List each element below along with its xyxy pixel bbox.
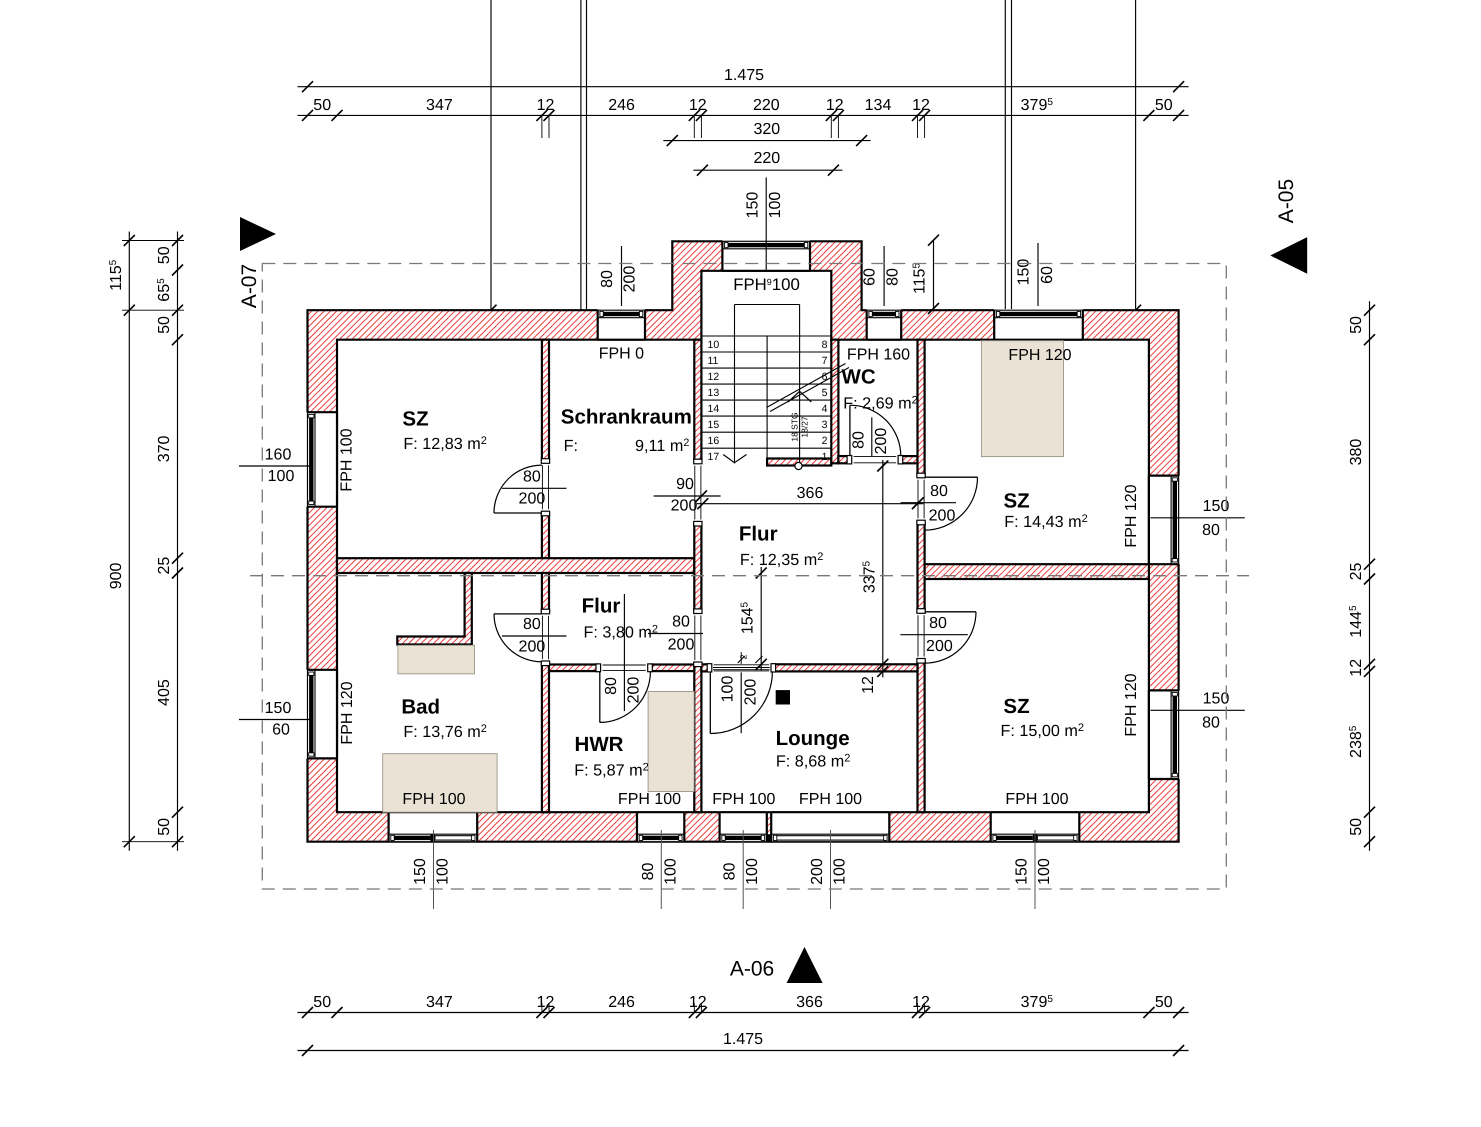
svg-text:200: 200 xyxy=(622,266,639,293)
svg-text:220: 220 xyxy=(753,97,780,114)
svg-text:FPH 100: FPH 100 xyxy=(339,428,356,491)
svg-text:2: 2 xyxy=(739,654,749,659)
svg-text:FPH 120: FPH 120 xyxy=(1123,484,1140,547)
svg-text:FPH 100: FPH 100 xyxy=(799,791,862,808)
svg-text:50: 50 xyxy=(1348,316,1365,334)
svg-text:150: 150 xyxy=(1203,691,1230,708)
svg-text:9,11 m2: 9,11 m2 xyxy=(635,437,689,455)
svg-text:347: 347 xyxy=(426,97,453,114)
svg-text:60: 60 xyxy=(862,268,879,286)
svg-text:50: 50 xyxy=(156,246,173,264)
svg-text:FPH 160: FPH 160 xyxy=(847,347,910,364)
svg-text:150: 150 xyxy=(265,700,292,717)
svg-text:FPH 120: FPH 120 xyxy=(339,681,356,744)
svg-text:12: 12 xyxy=(912,994,930,1011)
svg-text:16: 16 xyxy=(708,435,720,447)
svg-text:SZ: SZ xyxy=(1003,490,1029,513)
svg-text:F: 15,00 m2: F: 15,00 m2 xyxy=(1001,722,1085,740)
svg-text:150: 150 xyxy=(745,192,762,219)
svg-text:80: 80 xyxy=(930,483,948,500)
svg-text:11: 11 xyxy=(708,355,719,367)
svg-text:100: 100 xyxy=(767,192,784,219)
svg-text:80: 80 xyxy=(885,268,902,286)
svg-text:50: 50 xyxy=(1348,818,1365,836)
svg-text:200: 200 xyxy=(873,428,890,455)
svg-text:900: 900 xyxy=(108,562,125,589)
svg-text:200: 200 xyxy=(926,638,953,655)
svg-text:1: 1 xyxy=(822,451,828,463)
svg-text:F: 12,35 m2: F: 12,35 m2 xyxy=(740,551,824,569)
svg-text:F: 8,68 m2: F: 8,68 m2 xyxy=(776,753,851,771)
svg-text:5: 5 xyxy=(822,387,828,399)
svg-text:366: 366 xyxy=(797,485,824,502)
svg-text:150: 150 xyxy=(1203,498,1230,515)
svg-text:25: 25 xyxy=(1348,563,1365,581)
svg-text:134: 134 xyxy=(865,97,892,114)
svg-text:FPH 100: FPH 100 xyxy=(1005,791,1068,808)
svg-text:4: 4 xyxy=(822,403,828,415)
svg-text:Schrankraum: Schrankraum xyxy=(561,405,692,428)
svg-text:FPH 100: FPH 100 xyxy=(402,791,465,808)
svg-text:17: 17 xyxy=(708,451,720,463)
svg-text:50: 50 xyxy=(156,818,173,836)
svg-text:200: 200 xyxy=(519,491,546,508)
svg-text:15: 15 xyxy=(708,419,720,431)
svg-text:220: 220 xyxy=(753,150,780,167)
svg-text:80: 80 xyxy=(851,431,868,449)
svg-text:60: 60 xyxy=(272,722,290,739)
svg-text:12: 12 xyxy=(708,371,720,383)
svg-text:80: 80 xyxy=(722,863,739,881)
svg-text:Lounge: Lounge xyxy=(776,727,850,750)
svg-text:1.475: 1.475 xyxy=(724,67,764,84)
svg-text:SZ: SZ xyxy=(1003,695,1029,718)
svg-text:12: 12 xyxy=(826,97,844,114)
svg-text:80: 80 xyxy=(929,615,947,632)
svg-text:12: 12 xyxy=(537,994,555,1011)
svg-text:200: 200 xyxy=(519,639,546,656)
svg-text:FPH 0: FPH 0 xyxy=(599,346,644,363)
svg-text:3: 3 xyxy=(822,419,828,431)
svg-text:320: 320 xyxy=(753,121,780,138)
svg-text:366: 366 xyxy=(796,994,823,1011)
svg-text:12: 12 xyxy=(689,994,707,1011)
svg-text:80: 80 xyxy=(640,863,657,881)
svg-text:100: 100 xyxy=(832,858,849,885)
svg-text:50: 50 xyxy=(1155,994,1173,1011)
svg-text:12: 12 xyxy=(912,97,930,114)
svg-text:F: 14,43 m2: F: 14,43 m2 xyxy=(1004,513,1088,531)
svg-text:200: 200 xyxy=(742,679,759,706)
svg-text:80: 80 xyxy=(672,614,690,631)
svg-text:100: 100 xyxy=(268,468,295,485)
svg-text:150: 150 xyxy=(412,858,429,885)
svg-text:14: 14 xyxy=(708,403,720,415)
svg-text:18 STG: 18 STG xyxy=(790,412,800,441)
svg-text:405: 405 xyxy=(156,679,173,706)
svg-text:150: 150 xyxy=(1016,259,1033,286)
svg-text:18/27: 18/27 xyxy=(800,416,810,438)
svg-text:200: 200 xyxy=(668,637,695,654)
svg-text:A-07: A-07 xyxy=(238,264,261,308)
svg-text:Flur: Flur xyxy=(739,522,778,545)
svg-text:370: 370 xyxy=(156,435,173,462)
svg-text:F: 5,87 m2: F: 5,87 m2 xyxy=(574,761,649,779)
svg-text:1.475: 1.475 xyxy=(723,1031,763,1048)
svg-text:50: 50 xyxy=(313,97,331,114)
svg-text:246: 246 xyxy=(608,994,635,1011)
svg-text:80: 80 xyxy=(523,469,541,486)
svg-text:12: 12 xyxy=(537,97,555,114)
svg-text:F: 3,80 m2: F: 3,80 m2 xyxy=(584,624,659,642)
svg-text:200: 200 xyxy=(626,677,643,704)
svg-text:2: 2 xyxy=(822,435,828,447)
svg-text:12: 12 xyxy=(689,97,707,114)
svg-text:A-06: A-06 xyxy=(730,958,774,981)
svg-text:FPH 120: FPH 120 xyxy=(1123,673,1140,736)
svg-text:WC: WC xyxy=(842,366,876,389)
svg-text:SZ: SZ xyxy=(402,407,428,430)
svg-text:80: 80 xyxy=(1202,522,1220,539)
svg-text:8: 8 xyxy=(822,339,828,351)
svg-text:F: 13,76 m2: F: 13,76 m2 xyxy=(403,723,487,741)
svg-text:F:: F: xyxy=(564,437,578,455)
svg-text:FPH9100: FPH9100 xyxy=(733,275,800,294)
svg-text:12: 12 xyxy=(860,676,877,694)
svg-text:25: 25 xyxy=(156,557,173,575)
svg-text:246: 246 xyxy=(608,97,635,114)
svg-text:80: 80 xyxy=(603,677,620,695)
svg-text:Bad: Bad xyxy=(401,696,440,719)
svg-text:100: 100 xyxy=(744,858,761,885)
svg-text:F: 12,83 m2: F: 12,83 m2 xyxy=(403,435,487,453)
svg-text:FPH 100: FPH 100 xyxy=(712,791,775,808)
svg-text:50: 50 xyxy=(313,994,331,1011)
svg-text:150: 150 xyxy=(1014,858,1031,885)
svg-text:50: 50 xyxy=(156,316,173,334)
svg-text:50: 50 xyxy=(1155,97,1173,114)
svg-text:HWR: HWR xyxy=(575,733,624,756)
svg-text:F: 2,69 m2: F: 2,69 m2 xyxy=(843,394,918,412)
svg-text:380: 380 xyxy=(1348,439,1365,466)
svg-text:12: 12 xyxy=(1348,659,1365,677)
svg-text:A-05: A-05 xyxy=(1275,179,1298,223)
svg-text:13: 13 xyxy=(708,387,720,399)
svg-text:10: 10 xyxy=(708,339,720,351)
svg-text:FPH 100: FPH 100 xyxy=(618,791,681,808)
svg-text:160: 160 xyxy=(265,447,292,464)
svg-text:200: 200 xyxy=(809,858,826,885)
svg-text:100: 100 xyxy=(1036,858,1053,885)
svg-text:90: 90 xyxy=(676,476,694,493)
svg-text:100: 100 xyxy=(435,858,452,885)
svg-text:FPH 120: FPH 120 xyxy=(1008,347,1071,364)
svg-text:200: 200 xyxy=(671,498,698,515)
svg-text:347: 347 xyxy=(426,994,453,1011)
svg-text:80: 80 xyxy=(1202,715,1220,732)
svg-text:Flur: Flur xyxy=(582,595,621,618)
svg-text:7: 7 xyxy=(822,355,828,367)
svg-text:60: 60 xyxy=(1039,266,1056,284)
svg-text:200: 200 xyxy=(929,508,956,525)
svg-text:80: 80 xyxy=(599,270,616,288)
svg-text:100: 100 xyxy=(662,858,679,885)
svg-text:80: 80 xyxy=(523,616,541,633)
svg-text:100: 100 xyxy=(720,676,737,703)
